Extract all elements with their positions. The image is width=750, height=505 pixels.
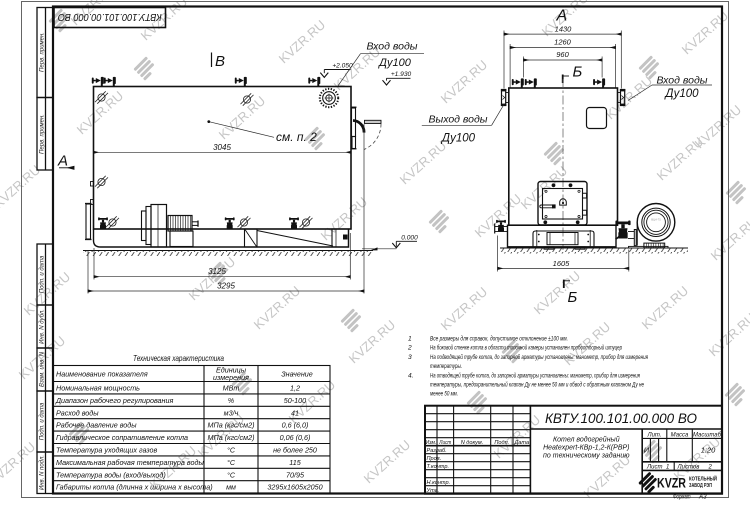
svg-text:Подп. и дата: Подп. и дата [40,255,46,293]
svg-text:3045: 3045 [213,143,231,152]
svg-text:N докум.: N докум. [461,440,484,446]
svg-text:не более 250: не более 250 [273,446,317,455]
svg-text:Температура уходящих газов: Температура уходящих газов [56,446,158,455]
svg-text:Масса: Масса [671,433,689,439]
svg-text:41: 41 [291,408,299,417]
svg-text:Значение: Значение [281,370,313,379]
svg-text:Все размеры для справок, допус: Все размеры для справок, допустимое откл… [430,335,568,343]
svg-text:Выход воды: Выход воды [428,114,487,126]
svg-text:На боковой стенке котла в обла: На боковой стенке котла в области топочн… [430,344,622,352]
svg-text:115: 115 [289,458,301,467]
svg-text:И: И [644,445,650,454]
svg-text:4.: 4. [408,372,414,379]
svg-text:см. п. 2: см. п. 2 [276,130,317,144]
svg-text:КВТУ.100.101.00.000 ВО: КВТУ.100.101.00.000 ВО [545,411,697,426]
svg-text:+1.930: +1.930 [391,71,412,78]
svg-text:0,6 (6,0): 0,6 (6,0) [282,421,309,430]
svg-text:%: % [228,396,235,405]
svg-text:Подп.: Подп. [494,440,509,446]
svg-text:Наименование показателя: Наименование показателя [56,370,148,379]
svg-text:Номинальная мощность: Номинальная мощность [56,384,140,393]
svg-text:1:20: 1:20 [701,445,716,454]
svg-text:1: 1 [408,336,412,343]
svg-text:КОТЕЛЬНЫЙ: КОТЕЛЬНЫЙ [689,475,717,483]
svg-text:Утв.: Утв. [426,488,440,494]
svg-text:Листов: Листов [677,464,700,470]
svg-text:1605: 1605 [553,259,571,268]
svg-text:МПа (кгс/см2): МПа (кгс/см2) [208,421,255,430]
svg-text:ЗАВОД РЭП: ЗАВОД РЭП [689,483,712,489]
svg-text:0.000: 0.000 [401,235,418,242]
svg-text:3125: 3125 [208,267,226,276]
svg-text:Лит.: Лит. [646,433,661,439]
svg-text:Диапазон рабочего регулировани: Диапазон рабочего регулирования [55,396,174,405]
svg-text:На подводящей трубе котла, до: На подводящей трубе котла, до запорной а… [430,353,648,361]
svg-text:Масштаб: Масштаб [693,433,722,439]
svg-text:Т.контр.: Т.контр. [427,464,450,470]
svg-text:Гидравлическое сопративление к: Гидравлическое сопративление котла [56,433,188,442]
svg-text:KVZR: KVZR [657,476,686,491]
svg-text:Вход воды: Вход воды [367,41,418,53]
svg-text:Расход воды: Расход воды [56,408,99,417]
svg-text:3295: 3295 [217,282,235,291]
svg-text:Формат: Формат [673,494,691,500]
svg-text:менее 50 мм.: менее 50 мм. [430,391,458,398]
svg-text:А: А [556,8,568,25]
svg-text:Инв. N подл.: Инв. N подл. [40,455,46,490]
svg-text:960: 960 [556,50,569,59]
svg-text:0,06 (0,6): 0,06 (0,6) [280,433,311,442]
svg-text:2: 2 [407,345,412,352]
svg-text:Взам. инв. N: Взам. инв. N [40,351,46,387]
svg-text:Н.контр.: Н.контр. [427,480,451,486]
svg-text:Габариты котла (длинна х ширин: Габариты котла (длинна х ширина х высота… [56,483,213,492]
svg-text:МВт: МВт [223,384,240,393]
svg-text:Изм.: Изм. [426,440,437,446]
svg-text:мм: мм [226,483,236,492]
svg-text:В: В [215,53,225,70]
svg-text:Лист: Лист [438,440,451,446]
svg-text:Ду100: Ду100 [377,57,412,69]
svg-text:Б: Б [568,289,578,306]
svg-text:1: 1 [666,464,669,470]
svg-text:Перв. примен.: Перв. примен. [40,114,46,154]
svg-text:Разраб.: Разраб. [427,448,447,454]
svg-text:2: 2 [708,464,713,470]
svg-text:На отводящей трубе котла, до з: На отводящей трубе котла, до запорной ар… [430,371,640,379]
svg-text:Пров.: Пров. [427,456,442,462]
svg-text:А3: А3 [698,494,707,500]
svg-text:Максимальная рабочая температу: Максимальная рабочая температура воды [56,458,204,467]
svg-text:°С: °С [227,458,236,467]
svg-text:50-100: 50-100 [284,396,306,405]
svg-text:Heatexpert-КВр-1,2-К(РВР): Heatexpert-КВр-1,2-К(РВР) [543,444,629,451]
svg-text:КВТУ.100.101.00.000 ВО: КВТУ.100.101.00.000 ВО [58,11,162,23]
svg-text:измерения: измерения [213,373,249,382]
svg-text:1,2: 1,2 [290,384,300,393]
svg-text:температуры, предохранительный: температуры, предохранительный клапан Ду… [430,381,644,389]
svg-text:Вход воды: Вход воды [657,74,708,86]
svg-text:°С: °С [227,446,236,455]
svg-text:70/95: 70/95 [286,470,305,479]
svg-text:Ду100: Ду100 [440,132,476,144]
svg-text:по техническому заданию: по техническому заданию [543,451,630,459]
svg-text:Б: Б [573,64,583,81]
svg-text:1430: 1430 [555,24,573,33]
svg-text:Техническая характеристика: Техническая характеристика [133,354,224,363]
svg-text:Лист: Лист [646,464,662,470]
svg-text:А: А [57,153,68,170]
svg-text:3295х1605х2050: 3295х1605х2050 [267,483,322,492]
svg-text:3: 3 [408,354,412,361]
svg-text:Инв. N дубл.: Инв. N дубл. [40,309,46,344]
svg-text:м3/ч: м3/ч [224,408,239,417]
svg-text:Температура воды (вход/выход): Температура воды (вход/выход) [56,470,166,479]
svg-text:ВЦ4-75: ВЦ4-75 [651,218,661,222]
svg-text:Рабочее давление воды: Рабочее давление воды [56,421,137,430]
svg-text:Ду100: Ду100 [663,88,699,100]
svg-text:Дата: Дата [513,440,529,446]
svg-text:°С: °С [227,470,236,479]
svg-text:1260: 1260 [554,38,572,47]
svg-text:Перв. примен.: Перв. примен. [40,32,46,72]
svg-text:температуры.: температуры. [430,363,462,370]
svg-text:МПа (кгс/см2): МПа (кгс/см2) [208,433,255,442]
svg-text:Котел водогрейный: Котел водогрейный [553,435,620,443]
svg-text:Подп. и дата: Подп. и дата [40,402,46,440]
